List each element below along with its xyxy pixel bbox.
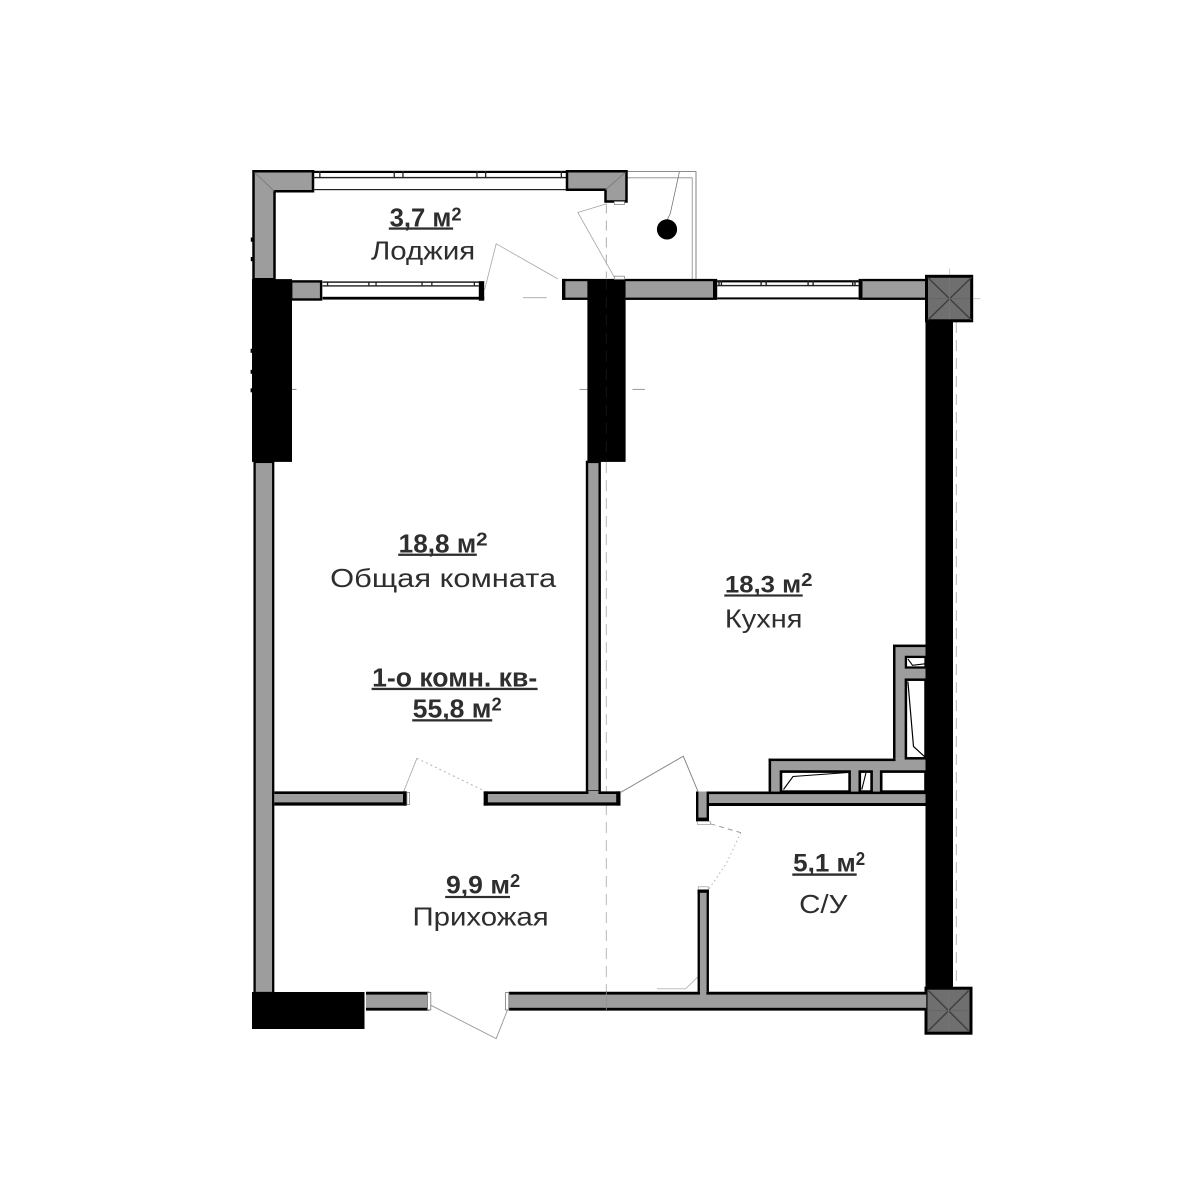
svg-text:Кухня: Кухня bbox=[725, 604, 803, 634]
svg-text:2: 2 bbox=[451, 204, 461, 225]
svg-text:2: 2 bbox=[856, 849, 865, 869]
svg-text:5,1 м: 5,1 м bbox=[793, 849, 856, 877]
svg-text:9,9 м: 9,9 м bbox=[446, 872, 510, 900]
svg-text:18,3 м: 18,3 м bbox=[725, 571, 801, 598]
svg-text:2: 2 bbox=[476, 529, 488, 550]
svg-text:Общая комната: Общая комната bbox=[330, 563, 557, 593]
svg-text:2: 2 bbox=[801, 570, 812, 590]
svg-text:Прихожая: Прихожая bbox=[413, 902, 549, 932]
svg-text:2: 2 bbox=[492, 694, 502, 715]
svg-text:С/У: С/У bbox=[799, 889, 848, 919]
svg-text:2: 2 bbox=[510, 871, 520, 891]
svg-text:Лоджия: Лоджия bbox=[371, 236, 475, 266]
